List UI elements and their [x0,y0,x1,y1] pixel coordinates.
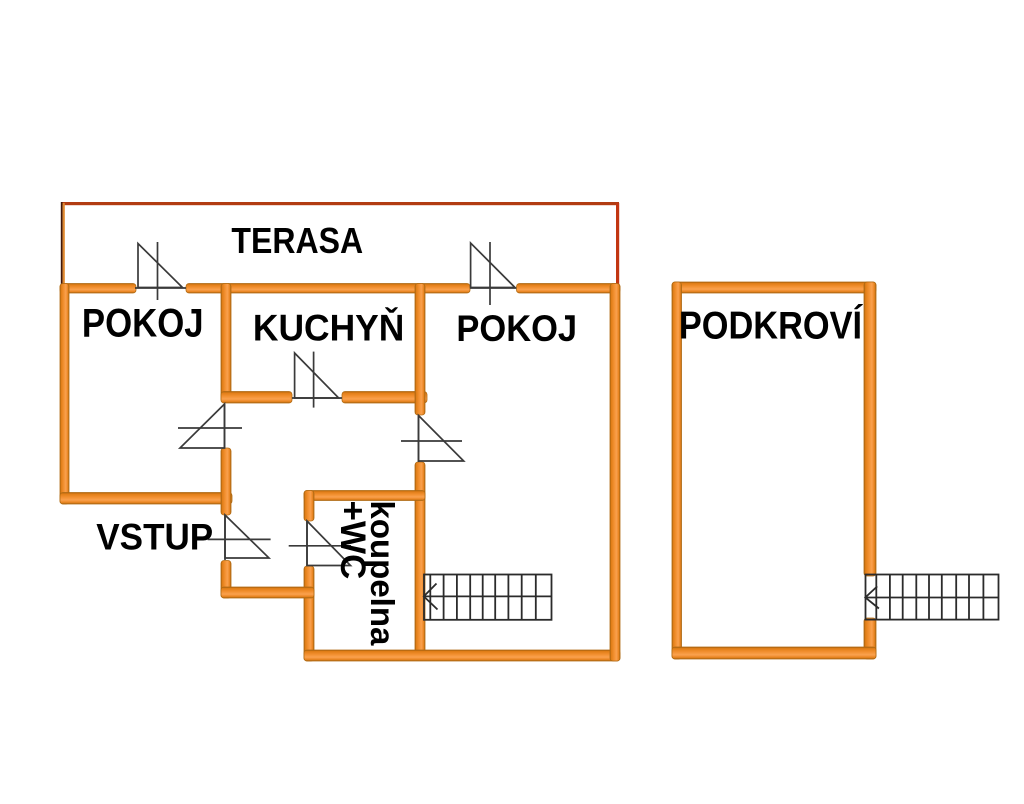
svg-text:PODKROVÍ: PODKROVÍ [679,303,863,346]
svg-text:POKOJ: POKOJ [82,300,204,345]
svg-text:VSTUP: VSTUP [96,515,213,557]
svg-text:KUCHYŇ: KUCHYŇ [253,306,404,349]
svg-text:TERASA: TERASA [231,221,363,261]
svg-text:POKOJ: POKOJ [456,308,577,349]
svg-text:koupelna+WC: koupelna+WC [333,501,401,647]
